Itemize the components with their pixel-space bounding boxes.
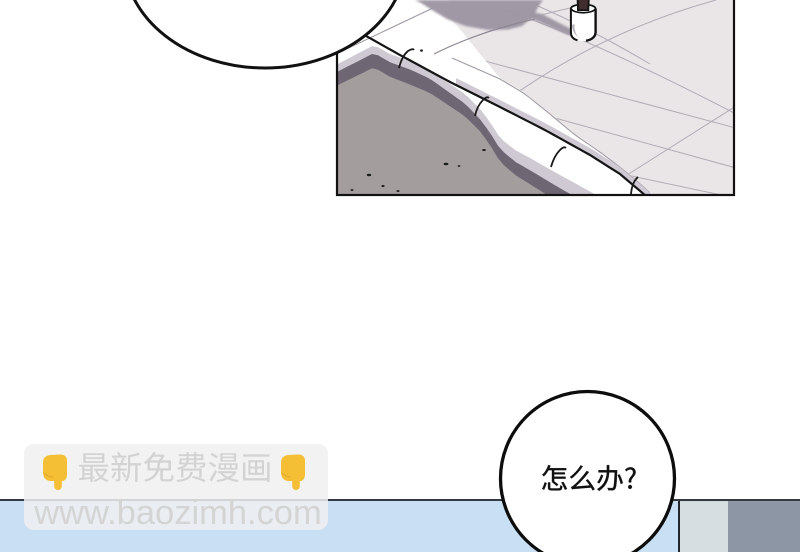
svg-text:www.baozimh.com: www.baozimh.com: [33, 494, 322, 532]
